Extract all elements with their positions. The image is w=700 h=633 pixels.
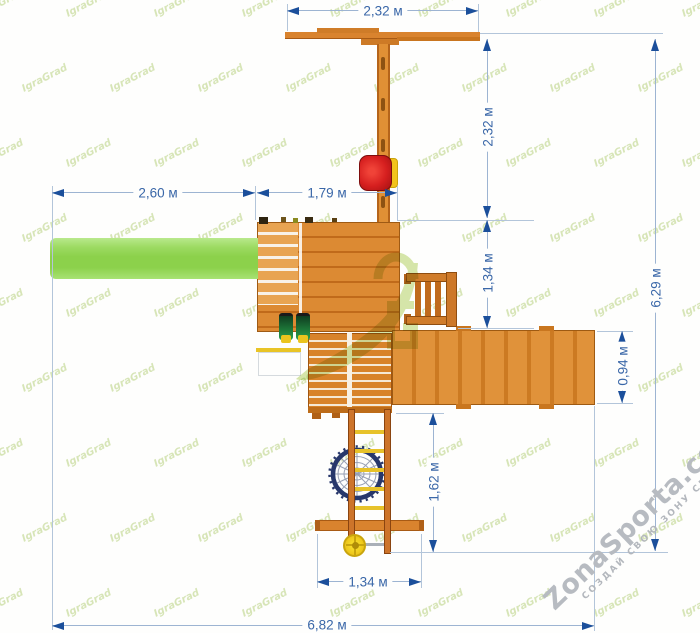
- brand-watermark-tile: IgraGrad: [680, 587, 700, 619]
- extension-line: [597, 403, 633, 404]
- ramp-post-tab: [456, 404, 471, 409]
- brand-watermark-tile: IgraGrad: [504, 587, 553, 619]
- brand-watermark-tile: IgraGrad: [416, 137, 465, 169]
- dim-arrow: [317, 578, 329, 586]
- brand-watermark-tile: IgraGrad: [636, 362, 685, 394]
- extension-line: [478, 4, 479, 32]
- extension-line: [480, 33, 663, 34]
- brand-watermark-tile: IgraGrad: [20, 62, 69, 94]
- platform-bracket: [305, 217, 313, 223]
- brand-watermark-tile: IgraGrad: [592, 587, 641, 619]
- dimension-drawing-canvas: IgraGradIgraGradIgraGradIgraGradIgraGrad…: [0, 0, 700, 633]
- extension-line: [52, 186, 53, 630]
- dim-label-net-beam: 1,34 м: [343, 575, 392, 590]
- platform-knob: [293, 218, 298, 223]
- brand-watermark-tile: IgraGrad: [548, 512, 597, 544]
- brand-watermark-tile: IgraGrad: [64, 137, 113, 169]
- platform-bracket: [259, 217, 268, 224]
- brand-watermark-tile: IgraGrad: [108, 362, 157, 394]
- ladder-rung: [354, 487, 385, 491]
- dim-arrow: [466, 7, 478, 15]
- brand-watermark-tile: IgraGrad: [0, 587, 25, 619]
- brand-watermark-tile: IgraGrad: [64, 287, 113, 319]
- ramp-post-tab: [539, 326, 554, 331]
- brand-watermark-tile: IgraGrad: [328, 587, 377, 619]
- dim-label-deck-depth: 1,34 м: [481, 248, 496, 297]
- slide: [50, 238, 258, 279]
- brand-watermark-tile: IgraGrad: [548, 62, 597, 94]
- brand-watermark-tile: IgraGrad: [64, 587, 113, 619]
- ladder-rail: [348, 409, 355, 554]
- brand-watermark-tile: IgraGrad: [636, 62, 685, 94]
- ladder-rung: [354, 430, 385, 434]
- dim-arrow: [429, 413, 437, 425]
- dim-label-swing-depth: 2,32 м: [481, 102, 496, 151]
- brand-watermark-tile: IgraGrad: [20, 362, 69, 394]
- brand-watermark-tile: IgraGrad: [196, 62, 245, 94]
- dim-label-net-drop: 1,62 м: [427, 457, 442, 506]
- swing-frame-slot: [381, 139, 385, 152]
- swing-crossbeam-tab: [317, 28, 379, 33]
- brand-watermark-tile: IgraGrad: [504, 287, 553, 319]
- platform-knob: [281, 217, 286, 222]
- brand-watermark-tile: IgraGrad: [592, 137, 641, 169]
- extension-line: [390, 552, 668, 553]
- brand-watermark-tile: IgraGrad: [548, 212, 597, 244]
- dim-arrow: [287, 7, 299, 15]
- brand-watermark-tile: IgraGrad: [196, 362, 245, 394]
- side-ladder-post: [446, 272, 457, 327]
- brand-watermark-tile: IgraGrad: [504, 137, 553, 169]
- brand-watermark-tile: IgraGrad: [108, 62, 157, 94]
- extension-line: [397, 220, 534, 221]
- bottom-beam: [315, 520, 424, 531]
- brand-watermark-tile: IgraGrad: [592, 0, 641, 20]
- brand-watermark-tile: IgraGrad: [416, 587, 465, 619]
- steering-wheel-hub: [352, 542, 359, 549]
- brand-watermark-tile: IgraGrad: [240, 0, 289, 20]
- dim-arrow: [483, 316, 491, 328]
- swing-frame-slot: [381, 57, 385, 70]
- brand-watermark-tile: IgraGrad: [0, 137, 25, 169]
- dim-arrow: [618, 391, 626, 403]
- brand-watermark-tile: IgraGrad: [0, 287, 25, 319]
- dim-arrow: [52, 189, 64, 197]
- brand-watermark-tile: IgraGrad: [636, 512, 685, 544]
- brand-watermark-tile: IgraGrad: [504, 437, 553, 469]
- extension-line: [458, 328, 534, 329]
- dim-arrow: [243, 189, 255, 197]
- dim-arrow: [483, 39, 491, 51]
- brand-watermark-tile: IgraGrad: [240, 587, 289, 619]
- dim-arrow: [651, 39, 659, 51]
- extension-line: [421, 534, 422, 588]
- dim-label-top-beam: 2,32 м: [358, 4, 407, 19]
- brand-watermark-tile: IgraGrad: [64, 437, 113, 469]
- dim-label-total-width: 6,82 м: [302, 618, 351, 633]
- dim-label-ramp-depth: 0,94 м: [616, 341, 631, 390]
- brand-watermark-tile: IgraGrad: [592, 287, 641, 319]
- ramp-post-tab: [539, 404, 554, 409]
- brand-watermark-tile: IgraGrad: [636, 212, 685, 244]
- dim-arrow: [385, 189, 397, 197]
- brand-watermark-tile: IgraGrad: [240, 437, 289, 469]
- dim-arrow: [582, 622, 594, 630]
- brand-watermark-tile: IgraGrad: [152, 587, 201, 619]
- bottom-beam-cap: [419, 520, 424, 531]
- dim-label-slide: 2,60 м: [133, 186, 182, 201]
- brand-watermark-tile: IgraGrad: [680, 137, 700, 169]
- swing-frame-slot: [381, 98, 385, 111]
- side-ladder-rung: [435, 282, 441, 316]
- brand-watermark-tile: IgraGrad: [64, 0, 113, 20]
- dim-label-total-depth: 6,29 м: [649, 263, 664, 312]
- brand-watermark-tile: IgraGrad: [152, 137, 201, 169]
- brand-watermark-tile: IgraGrad: [196, 512, 245, 544]
- ladder-rail: [384, 409, 391, 554]
- brand-watermark-tile: IgraGrad: [152, 437, 201, 469]
- bridge-post: [312, 413, 321, 419]
- swing-crossbeam-right-layer: [397, 37, 480, 41]
- brand-watermark-tile: IgraGrad: [680, 287, 700, 319]
- side-ladder-rung: [425, 282, 431, 316]
- brand-watermark-tile: IgraGrad: [284, 62, 333, 94]
- extension-line: [255, 186, 256, 220]
- dim-arrow: [651, 539, 659, 551]
- dim-arrow: [483, 206, 491, 218]
- bottom-beam-cap: [315, 520, 320, 531]
- ramp-deck: [392, 330, 595, 405]
- brand-watermark-tile: IgraGrad: [592, 437, 641, 469]
- extension-line: [597, 331, 633, 332]
- brand-watermark-tile: IgraGrad: [504, 0, 553, 20]
- brand-watermark-tile: IgraGrad: [240, 137, 289, 169]
- brand-watermark-tile: IgraGrad: [0, 437, 25, 469]
- swing-frame-slot: [381, 196, 385, 208]
- extension-line: [397, 186, 398, 221]
- brand-watermark-tile: IgraGrad: [0, 0, 25, 20]
- brand-watermark-tile: IgraGrad: [460, 512, 509, 544]
- brand-watermark-tile: IgraGrad: [680, 0, 700, 20]
- brand-logo-icon: [288, 243, 420, 385]
- ladder-rung: [354, 449, 385, 453]
- dim-arrow: [429, 540, 437, 552]
- site-watermark-slogan: СОЗДАЙ СВОЮ ЗОНУ СПОРТА: [580, 379, 700, 602]
- brand-watermark-tile: IgraGrad: [152, 0, 201, 20]
- swing-seat: [359, 155, 392, 191]
- brand-watermark-tile: IgraGrad: [152, 287, 201, 319]
- platform-knob: [332, 218, 337, 222]
- ladder-rung: [354, 468, 385, 472]
- dim-label-deck-offset: 1,79 м: [302, 186, 351, 201]
- ladder-rung: [354, 506, 385, 510]
- extension-line: [594, 406, 595, 631]
- bridge-post: [332, 413, 340, 418]
- brand-watermark-tile: IgraGrad: [680, 437, 700, 469]
- dim-arrow: [483, 220, 491, 232]
- brand-watermark-tile: IgraGrad: [20, 512, 69, 544]
- dim-arrow: [257, 189, 269, 197]
- dim-arrow: [409, 578, 421, 586]
- brand-watermark-tile: IgraGrad: [460, 62, 509, 94]
- brand-logo-overlay: [288, 243, 420, 385]
- brand-watermark-tile: IgraGrad: [108, 512, 157, 544]
- dim-arrow: [52, 622, 64, 630]
